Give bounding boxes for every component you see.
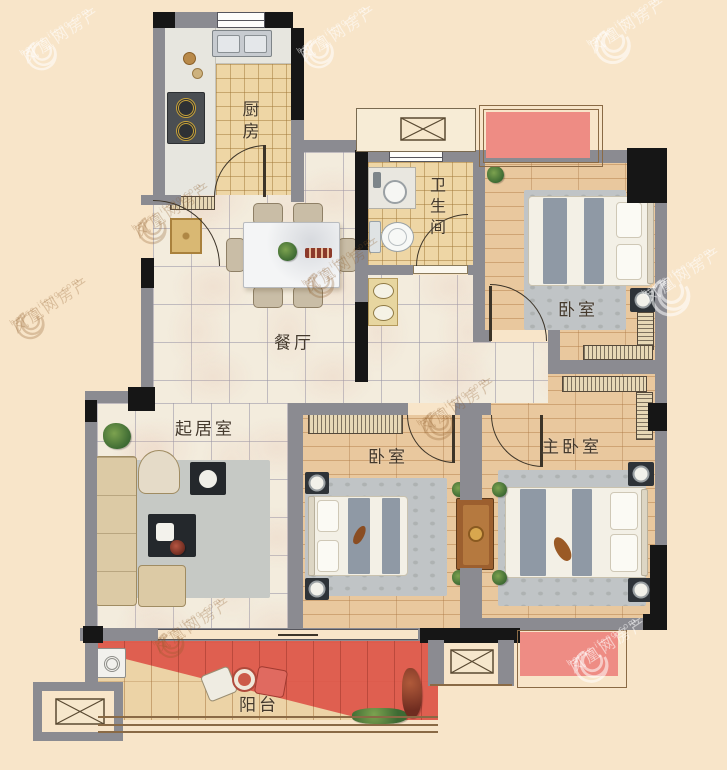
bedroom-north-duvet-band <box>543 198 567 284</box>
column <box>627 148 667 203</box>
kitchen-decor-plate <box>183 52 196 65</box>
bathroom-label: 卫生间 <box>424 177 448 240</box>
wall-segment <box>153 12 165 197</box>
bedroom-north-headboard <box>647 198 654 284</box>
sofa-chaise <box>138 565 186 607</box>
ac-platform-wall <box>428 640 444 686</box>
balcony-railing <box>98 716 438 734</box>
wall-segment <box>455 403 491 415</box>
master-label: 主卧室 <box>542 433 602 458</box>
wall-segment <box>468 265 485 275</box>
plant <box>492 570 507 585</box>
wall-segment <box>291 118 304 202</box>
bedroom-south-label: 卧室 <box>368 443 408 468</box>
floor-plan: 厨房 卫生间 餐厅 起居室 卧室 卧室 主卧室 阳台 凤凰网房产house.if… <box>0 0 727 770</box>
column <box>355 150 368 250</box>
bedroom-north-label: 卧室 <box>558 296 598 321</box>
bedroom-north-door-leaf <box>489 286 492 341</box>
wall-segment <box>473 150 485 342</box>
burner <box>176 121 196 141</box>
dining-label: 餐厅 <box>274 329 314 354</box>
bedroom-south-duvet-band <box>382 498 400 574</box>
shaft-x-symbol <box>400 117 446 141</box>
flower-bed-north <box>486 112 590 158</box>
sofa <box>95 456 137 606</box>
dining-chair <box>253 286 283 308</box>
toilet <box>369 221 381 253</box>
kitchen-sink <box>212 30 272 57</box>
table-top-decor <box>238 673 251 686</box>
basin <box>373 305 394 321</box>
toilet-seat <box>388 228 407 246</box>
bedroom-north-pillow <box>616 202 642 238</box>
bedroom-south-wardrobe <box>308 414 403 434</box>
hall-cabinet <box>456 498 494 570</box>
wall-segment <box>303 403 408 415</box>
burner <box>176 98 196 118</box>
bedroom-south-door-leaf <box>452 415 455 463</box>
kitchen-label: 厨房 <box>237 100 262 144</box>
plant <box>170 540 185 555</box>
column <box>291 28 304 120</box>
column <box>85 400 97 422</box>
column <box>355 302 368 382</box>
double-vanity <box>368 278 398 326</box>
master-pillow <box>610 534 638 572</box>
vent-grille <box>389 151 443 162</box>
wall-segment <box>288 403 303 641</box>
master-headboard <box>641 489 648 576</box>
flower-bed-south <box>520 632 618 676</box>
bedroom-north-pillow <box>616 244 642 280</box>
master-nightstand <box>628 462 654 486</box>
table-tray <box>305 248 332 258</box>
hall-cabinet-handle <box>468 526 484 542</box>
phoenix-spiral-icon <box>8 303 52 347</box>
living-label: 起居室 <box>175 415 235 440</box>
dining-chair <box>293 286 323 308</box>
bedroom-north-nightstand <box>630 288 656 312</box>
plant <box>487 166 504 183</box>
bedroom-south-pillow <box>317 540 339 572</box>
kitchen-decor-plate <box>192 68 203 79</box>
slider-handle <box>278 634 318 636</box>
kitchen-window <box>217 12 265 28</box>
kitchen-door-leaf <box>263 145 266 197</box>
bedroom-south-nightstand <box>305 578 329 600</box>
wall-segment <box>355 265 413 275</box>
ac-platform-edge <box>430 684 512 686</box>
master-pillow <box>610 492 638 530</box>
column <box>648 403 667 431</box>
bedroom-south-pillow <box>317 500 339 532</box>
ac-x-symbol <box>450 649 494 674</box>
table-dish <box>156 523 174 541</box>
column <box>83 626 103 643</box>
balcony-plant-tall <box>402 668 422 718</box>
column <box>128 387 155 411</box>
stove <box>167 92 205 144</box>
washer-door <box>104 656 120 672</box>
phoenix-spiral-icon <box>18 31 65 78</box>
master-wardrobe <box>562 376 647 392</box>
bedroom-south-headboard <box>308 496 315 576</box>
plant <box>492 482 507 497</box>
toilet-bowl <box>381 222 414 252</box>
sink-basin <box>244 35 267 53</box>
column <box>153 12 175 28</box>
wall-segment <box>548 360 655 374</box>
table-centerpiece-plant <box>278 242 297 261</box>
round-basin <box>383 180 407 204</box>
bathroom-threshold <box>413 265 468 274</box>
balcony-sliding-door <box>158 629 418 640</box>
wall-segment <box>174 12 217 28</box>
table-bowl <box>199 470 217 488</box>
plant <box>103 423 131 449</box>
phoenix-spiral-icon <box>585 18 640 73</box>
balcony-table <box>232 667 257 692</box>
wall-segment <box>460 415 482 500</box>
bedroom-north-duvet-band <box>584 198 604 284</box>
bedroom-north-wardrobe <box>583 345 653 360</box>
wall-segment <box>85 403 97 641</box>
ac-platform-wall <box>498 640 514 686</box>
bedroom-south-nightstand <box>305 472 329 494</box>
balcony-label: 阳台 <box>239 691 279 716</box>
wall-segment <box>548 330 560 362</box>
column <box>643 614 667 630</box>
wall-segment <box>460 568 482 630</box>
column <box>263 12 293 28</box>
basin <box>373 283 394 299</box>
faucet <box>373 172 381 188</box>
armchair <box>138 450 180 494</box>
bathroom-vanity <box>368 167 416 209</box>
column <box>650 545 667 620</box>
washing-machine <box>96 648 126 678</box>
master-duvet-band <box>572 489 592 576</box>
master-duvet-band <box>520 489 546 576</box>
coffee-table <box>190 462 226 495</box>
sink-basin <box>217 35 240 53</box>
